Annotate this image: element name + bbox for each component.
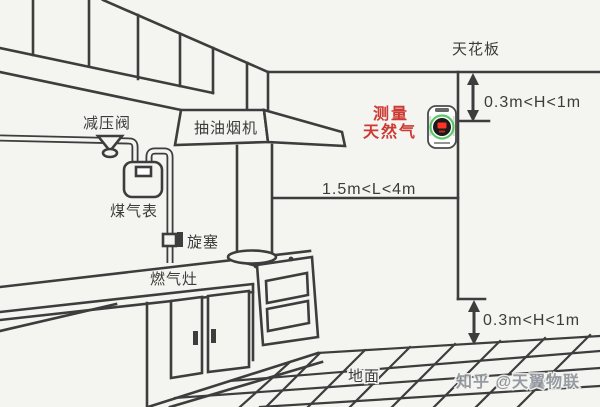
door-handle-left: [193, 331, 198, 345]
dim-top-label: 0.3m<H<1m: [484, 94, 581, 111]
detector-display-digits: [438, 123, 447, 129]
gas-meter-label: 煤气表: [110, 203, 158, 220]
plug-valve-label: 旋塞: [187, 233, 219, 251]
gas-pipes: [0, 138, 170, 263]
door-handle-right: [211, 329, 216, 343]
dim-middle-label: 1.5m<L<4m: [322, 181, 416, 198]
measure-label-line2: 天然气: [363, 122, 417, 141]
stove-knob: [254, 264, 259, 269]
stove-knob: [289, 257, 294, 262]
diagram-canvas: 天花板 0.3m<H<1m 测量 天然气 1.5m<L<4m 0.3m<H<1m…: [0, 0, 600, 407]
kitchen-gas-detector-installation-diagram: 天花板 0.3m<H<1m 测量 天然气 1.5m<L<4m 0.3m<H<1m…: [0, 0, 600, 407]
gas-meter: [124, 162, 162, 197]
gas-detector-device: [428, 106, 456, 148]
gas-stove-label: 燃气灶: [150, 270, 198, 288]
dimension-arrow-bottom: [468, 300, 480, 345]
measure-label-line1: 测量: [373, 104, 409, 123]
pressure-valve-label: 减压阀: [83, 115, 131, 132]
detector-top-vent: [435, 108, 449, 112]
dimension-arrow-top: [467, 73, 479, 122]
detector-display-dot: [439, 131, 445, 133]
ground-label: 地面: [348, 368, 380, 385]
watermark: 知乎 @天翼物联: [456, 372, 580, 391]
dim-bottom-label: 0.3m<H<1m: [483, 312, 580, 329]
range-hood-label: 抽油烟机: [194, 120, 258, 137]
ceiling-label: 天花板: [452, 40, 500, 58]
pressure-reducing-valve: [98, 136, 122, 157]
plug-valve: [163, 232, 183, 247]
